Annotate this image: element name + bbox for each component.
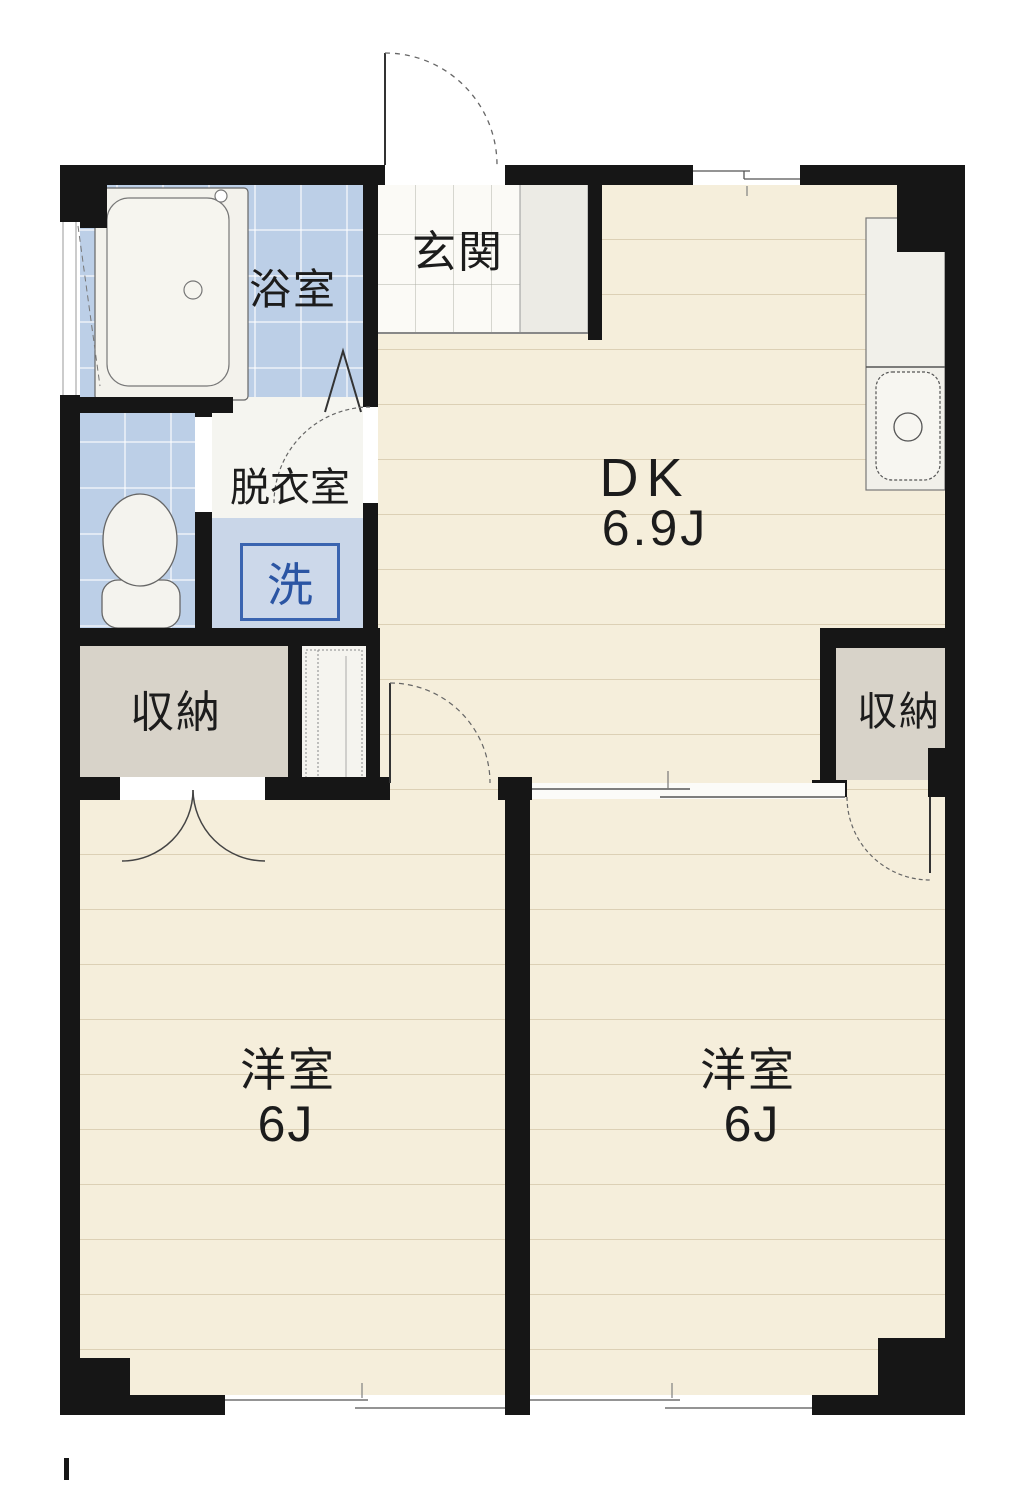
- bedroom-left-door: [390, 683, 490, 783]
- bedroom-right-window: [530, 1383, 812, 1408]
- bedroom-left-label: 洋室: [240, 1047, 336, 1093]
- bath-folding-door: [325, 351, 361, 412]
- bathtub: [95, 188, 248, 400]
- closet-left-doors: [122, 790, 265, 861]
- closet-left-label: 収納: [130, 691, 222, 735]
- washing-machine-label: 洗: [267, 549, 313, 615]
- closet-right-label: 収納: [857, 692, 941, 732]
- dk-size-label: 6.9J: [602, 503, 709, 553]
- bath-window: [60, 222, 100, 395]
- dk-window: [693, 171, 800, 196]
- genkan-label: 玄関: [412, 231, 504, 275]
- bedroom-left-window: [225, 1383, 505, 1408]
- water-heater-icon: [306, 650, 362, 788]
- bedroom-left-size-label: 6J: [258, 1099, 315, 1149]
- entrance-door: [385, 53, 497, 165]
- dressing-room-label: 脱衣室: [230, 468, 350, 508]
- bathroom-label: 浴室: [249, 269, 337, 311]
- washing-machine: 洗: [240, 543, 340, 621]
- closet-right-door: [847, 797, 930, 880]
- sliding-door: [532, 771, 845, 799]
- shoe-cabinet: [520, 183, 588, 333]
- bedroom-right-size-label: 6J: [724, 1099, 781, 1149]
- plan-linework: [0, 0, 1018, 1489]
- floor-plan: 玄関 浴室 脱衣室 洗 DK 6.9J 収納 収納 洋室 6J 洋室 6J: [0, 0, 1018, 1489]
- bedroom-right-label: 洋室: [700, 1047, 796, 1093]
- kitchen-sink: [876, 372, 940, 480]
- dk-label: DK: [599, 451, 690, 505]
- toilet: [102, 494, 180, 628]
